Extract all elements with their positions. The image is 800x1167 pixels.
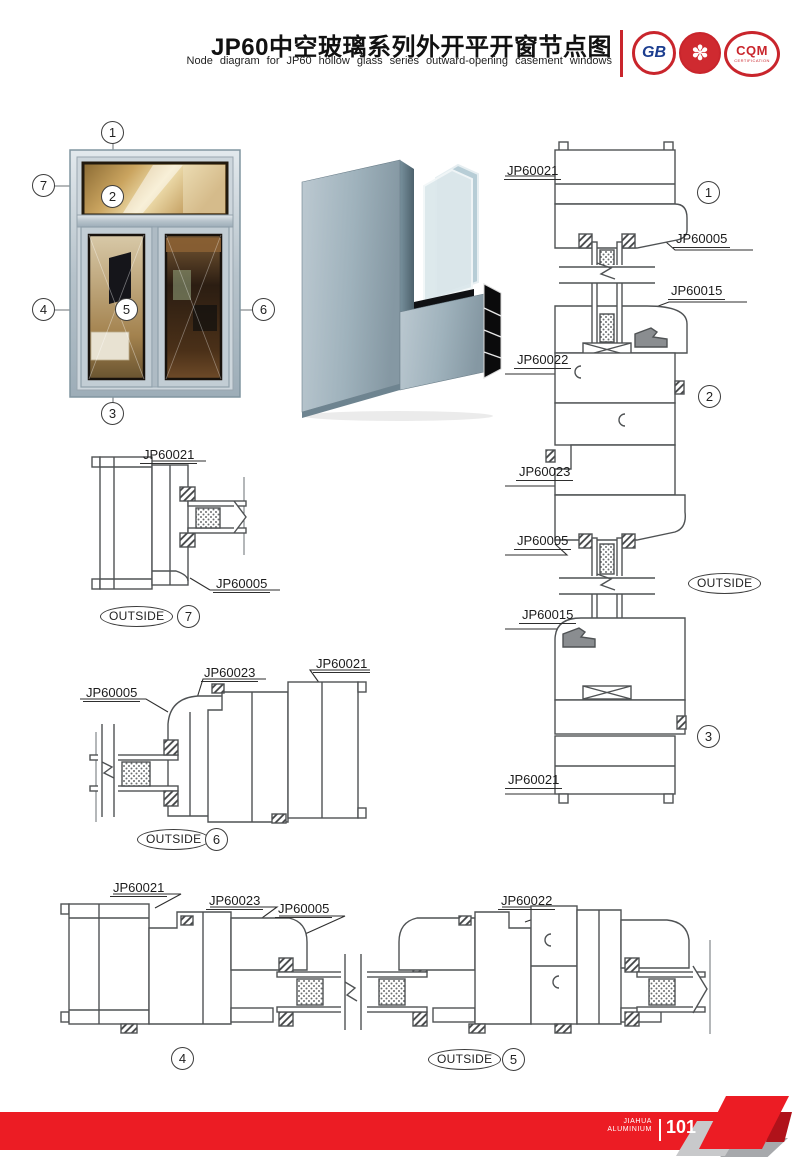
profile-frame-bottom — [555, 736, 675, 803]
profile-sash-05 — [231, 918, 307, 970]
page-subtitle: Node diagram for JP60 hollow glass serie… — [0, 55, 612, 67]
elevation-callout-3: 3 — [101, 402, 124, 425]
window-frame — [70, 150, 240, 397]
section-callout-3: 3 — [697, 725, 720, 748]
profile-label: JP60022 — [498, 893, 555, 910]
profile-label: JP60005 — [213, 576, 270, 593]
header-red-divider — [620, 30, 623, 77]
profile-label: JP60005 — [83, 685, 140, 702]
profile-frame — [92, 457, 152, 589]
footer-divider — [659, 1119, 661, 1141]
detail-callout-5: 5 — [502, 1048, 525, 1071]
profile-label: JP60005 — [514, 533, 571, 550]
gb-logo-text: GB — [642, 44, 666, 62]
page-number: 101 — [666, 1117, 696, 1138]
outside-badge: OUTSIDE — [100, 606, 173, 627]
outside-badge: OUTSIDE — [688, 573, 761, 594]
profile-transom — [555, 353, 684, 445]
elevation-callout-4: 4 — [32, 298, 55, 321]
elevation-callout-5: 5 — [115, 298, 138, 321]
detail-4-5-drawing — [55, 882, 765, 1047]
profile-label: JP60015 — [519, 607, 576, 624]
vertical-section-drawing — [497, 138, 797, 843]
detail-callout-7: 7 — [177, 605, 200, 628]
elevation-callout-2: 2 — [101, 185, 124, 208]
elevation-callout-1: 1 — [101, 121, 124, 144]
cqm-logo-subtext: CERTIFICATION — [734, 58, 770, 63]
detail-callout-6: 6 — [205, 828, 228, 851]
flower-icon: ✽ — [691, 43, 709, 64]
profile-label: JP60021 — [504, 163, 561, 180]
catalog-page: JP60中空玻璃系列外开平开窗节点图 Node diagram for JP60… — [0, 0, 800, 1167]
profile-label: JP60021 — [110, 880, 167, 897]
glass-unit — [180, 487, 246, 547]
profile-label: JP60022 — [514, 352, 571, 369]
profile-sash-05-mirror — [399, 918, 475, 970]
footer-brand: JIAHUA ALUMINIUM — [540, 1118, 652, 1134]
outside-badge: OUTSIDE — [428, 1049, 501, 1070]
footer-brand-line1: JIAHUA — [540, 1118, 652, 1126]
profile-label: JP60005 — [275, 901, 332, 918]
emblem-certification-logo: ✽ — [679, 32, 721, 74]
glass-unit — [90, 724, 178, 817]
elevation-callout-6: 6 — [252, 298, 275, 321]
profile-label: JP60023 — [516, 464, 573, 481]
profile-label: JP60021 — [140, 447, 197, 464]
profile-label: JP60023 — [206, 893, 263, 910]
cqm-certification-logo: CQM CERTIFICATION — [724, 31, 780, 77]
profile-frame-left — [61, 904, 149, 1024]
profile-corner-photo — [288, 132, 503, 422]
section-callout-1: 1 — [697, 181, 720, 204]
profile-sash-23 — [149, 912, 231, 1024]
detail-callout-4: 4 — [171, 1047, 194, 1070]
profile-sash — [152, 465, 188, 585]
profile-label: JP60005 — [673, 231, 730, 248]
profile-label: JP60021 — [505, 772, 562, 789]
section-callout-2: 2 — [698, 385, 721, 408]
cqm-logo-text: CQM — [736, 45, 768, 57]
profile-sash-23-mirror — [475, 912, 531, 1024]
glass-unit — [424, 165, 478, 302]
profile-mullion — [531, 906, 577, 1024]
profile-frame-top — [555, 142, 675, 204]
footer-brand-line2: ALUMINIUM — [540, 1126, 652, 1134]
outside-badge: OUTSIDE — [137, 829, 210, 850]
gb-certification-logo: GB — [632, 31, 676, 75]
detail-7-drawing — [92, 443, 327, 608]
profile-label: JP60023 — [201, 665, 258, 682]
profile-label: JP60021 — [313, 656, 370, 673]
profile-sash-lower — [555, 495, 685, 540]
elevation-callout-7: 7 — [32, 174, 55, 197]
window-elevation-figure — [33, 120, 283, 430]
profile-label: JP60015 — [668, 283, 725, 300]
